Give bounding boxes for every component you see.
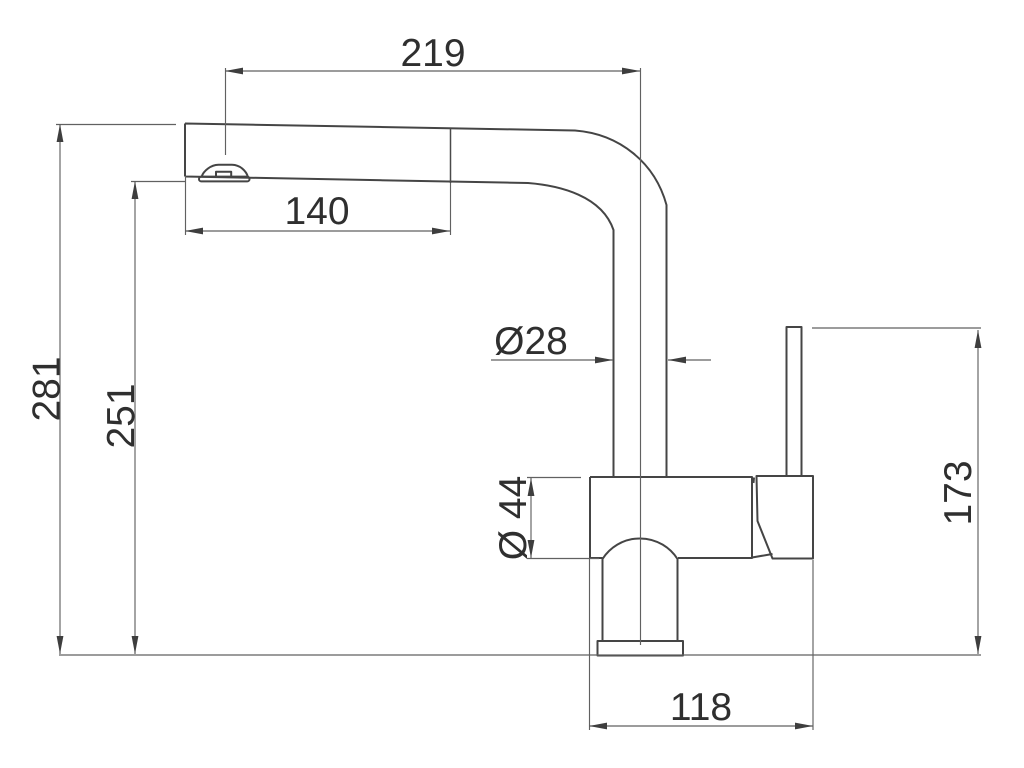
svg-text:140: 140	[284, 190, 349, 233]
svg-text:Ø 44: Ø 44	[492, 476, 535, 561]
svg-text:Ø28: Ø28	[494, 320, 568, 363]
svg-text:251: 251	[100, 383, 143, 448]
svg-text:173: 173	[937, 460, 980, 525]
svg-text:219: 219	[400, 32, 465, 75]
svg-text:281: 281	[26, 356, 69, 421]
svg-text:118: 118	[670, 686, 732, 729]
